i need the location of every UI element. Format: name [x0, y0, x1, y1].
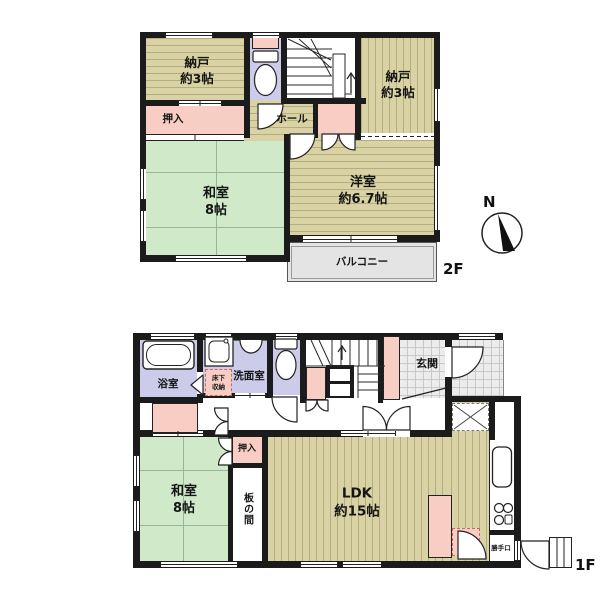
wall: [489, 402, 495, 440]
wall: [133, 333, 140, 568]
wall: [445, 377, 452, 437]
wall: [267, 333, 273, 398]
hall-label: ホール: [276, 113, 308, 127]
door-toilet-1f: [272, 397, 297, 422]
washitsu-2f-label: 和室 8帖: [203, 186, 229, 220]
window: [458, 334, 496, 339]
washitsu-1f-label: 和室 8帖: [171, 484, 197, 518]
cupboard: [428, 495, 452, 558]
wall: [281, 32, 287, 104]
closet-2f: [318, 104, 355, 134]
window: [141, 210, 146, 242]
window: [252, 33, 280, 38]
wall: [262, 437, 268, 561]
youshitsu-label: 洋室 約6.7帖: [338, 175, 387, 209]
wall: [197, 333, 203, 372]
ldk-label: LDK 約15帖: [334, 485, 380, 520]
wall: [228, 437, 233, 561]
window: [134, 500, 139, 532]
stairs-2f: [287, 39, 355, 98]
floor-plan: 納戸 約3帖 押入 ホール 納戸 約3帖 和室 8帖 洋室 約6.7帖 バルコニ…: [0, 0, 600, 600]
tatami-line: [140, 525, 228, 526]
window: [165, 33, 213, 38]
nando-right-label: 納戸 約3帖: [381, 69, 415, 102]
floor2-label: 2F: [443, 260, 464, 278]
exterior-steps: [549, 537, 572, 568]
service-space: [452, 403, 489, 431]
window: [435, 88, 440, 122]
sliding-door: [340, 431, 396, 436]
oshiire-2f-label: 押入: [163, 113, 184, 127]
katteguchi-label: 勝手口: [491, 544, 511, 552]
underfloor-storage: 床下 収納: [205, 369, 232, 396]
bathroom-label: 浴室: [158, 378, 179, 392]
wall: [355, 32, 361, 140]
sliding-window: [302, 236, 398, 242]
genkan-label: 玄関: [416, 357, 438, 371]
understair-storage-panel: [330, 384, 350, 396]
compass-icon: [482, 213, 522, 253]
washroom-label: 洗面室: [233, 370, 265, 384]
understair-storage-panel: [330, 369, 350, 381]
window: [141, 168, 146, 200]
wall: [410, 430, 445, 437]
sliding-door: [361, 133, 434, 140]
compass-north-label: N: [483, 193, 496, 211]
wall: [445, 333, 452, 347]
entrance-porch: [452, 340, 504, 398]
window: [205, 334, 232, 339]
understair-closet-door: [317, 400, 328, 411]
nando-left-label: 納戸 約3帖: [180, 55, 214, 88]
window: [150, 334, 195, 339]
hall-double-door: [215, 408, 229, 422]
window: [275, 334, 298, 339]
room-oshiire-2f: [146, 106, 244, 134]
wall: [445, 396, 514, 402]
window: [160, 562, 238, 567]
window: [435, 165, 440, 231]
wall: [281, 98, 366, 104]
wall: [284, 134, 290, 262]
oshiire-1f-label: 押入: [238, 444, 256, 456]
hall-closet: [152, 403, 198, 433]
understair-closet-door: [306, 400, 317, 411]
kitchen-underfloor-storage: 床下 収納: [452, 528, 480, 556]
shoe-cabinet: [383, 336, 400, 400]
wall: [489, 530, 514, 535]
sliding-door: [178, 101, 222, 106]
wall: [244, 32, 250, 138]
wall: [228, 463, 268, 468]
tatami-line: [140, 470, 228, 471]
balcony-label: バルコニー: [336, 256, 388, 270]
ldk-double-door: [387, 407, 411, 431]
back-door-gap: [515, 540, 520, 561]
tatami-line: [146, 227, 284, 228]
window: [342, 562, 382, 567]
ldk-double-door: [363, 407, 387, 431]
tatami-line: [146, 172, 284, 173]
wall: [313, 104, 318, 138]
window: [300, 562, 338, 567]
window: [175, 256, 247, 261]
sliding-door: [234, 393, 266, 398]
window: [134, 455, 139, 487]
floor1-label: 1F: [575, 556, 596, 574]
understair-closet: [306, 367, 326, 400]
room-toilet-1f: [273, 335, 300, 395]
itanoma-label: 板の間: [241, 493, 254, 526]
fusuma-door: [146, 134, 244, 141]
back-door: [521, 541, 549, 569]
